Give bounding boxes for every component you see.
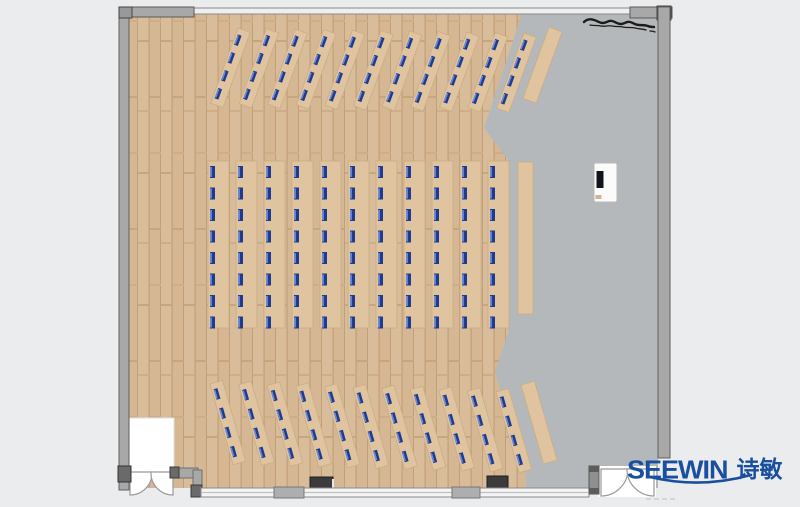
wall-left-bottom-block	[118, 466, 131, 482]
door-recess	[129, 418, 174, 472]
brand-logo: SEEWIN诗敏	[627, 450, 797, 496]
door-leaf-icon	[130, 472, 152, 495]
desk-strip	[320, 161, 341, 329]
desk-strip	[460, 161, 481, 329]
desk-strip	[488, 161, 509, 329]
desk-strip	[264, 161, 285, 329]
wall-right	[658, 7, 670, 458]
podium	[594, 163, 617, 202]
wall-top-thin	[192, 8, 632, 14]
wall-left	[119, 7, 129, 490]
floor-plan-svg	[0, 0, 800, 507]
brand-swoosh-icon	[647, 473, 755, 488]
desk-strip	[404, 161, 425, 329]
desk-strip	[348, 161, 369, 329]
desk-strip	[208, 161, 229, 329]
floor-plan-render: SEEWIN诗敏	[0, 0, 800, 507]
desk-strip	[292, 161, 313, 329]
podium-screen-icon	[597, 171, 604, 188]
desk-strip	[432, 161, 453, 329]
desk-strip	[236, 161, 257, 329]
desk-strip	[376, 161, 397, 329]
side-counter	[518, 162, 533, 314]
